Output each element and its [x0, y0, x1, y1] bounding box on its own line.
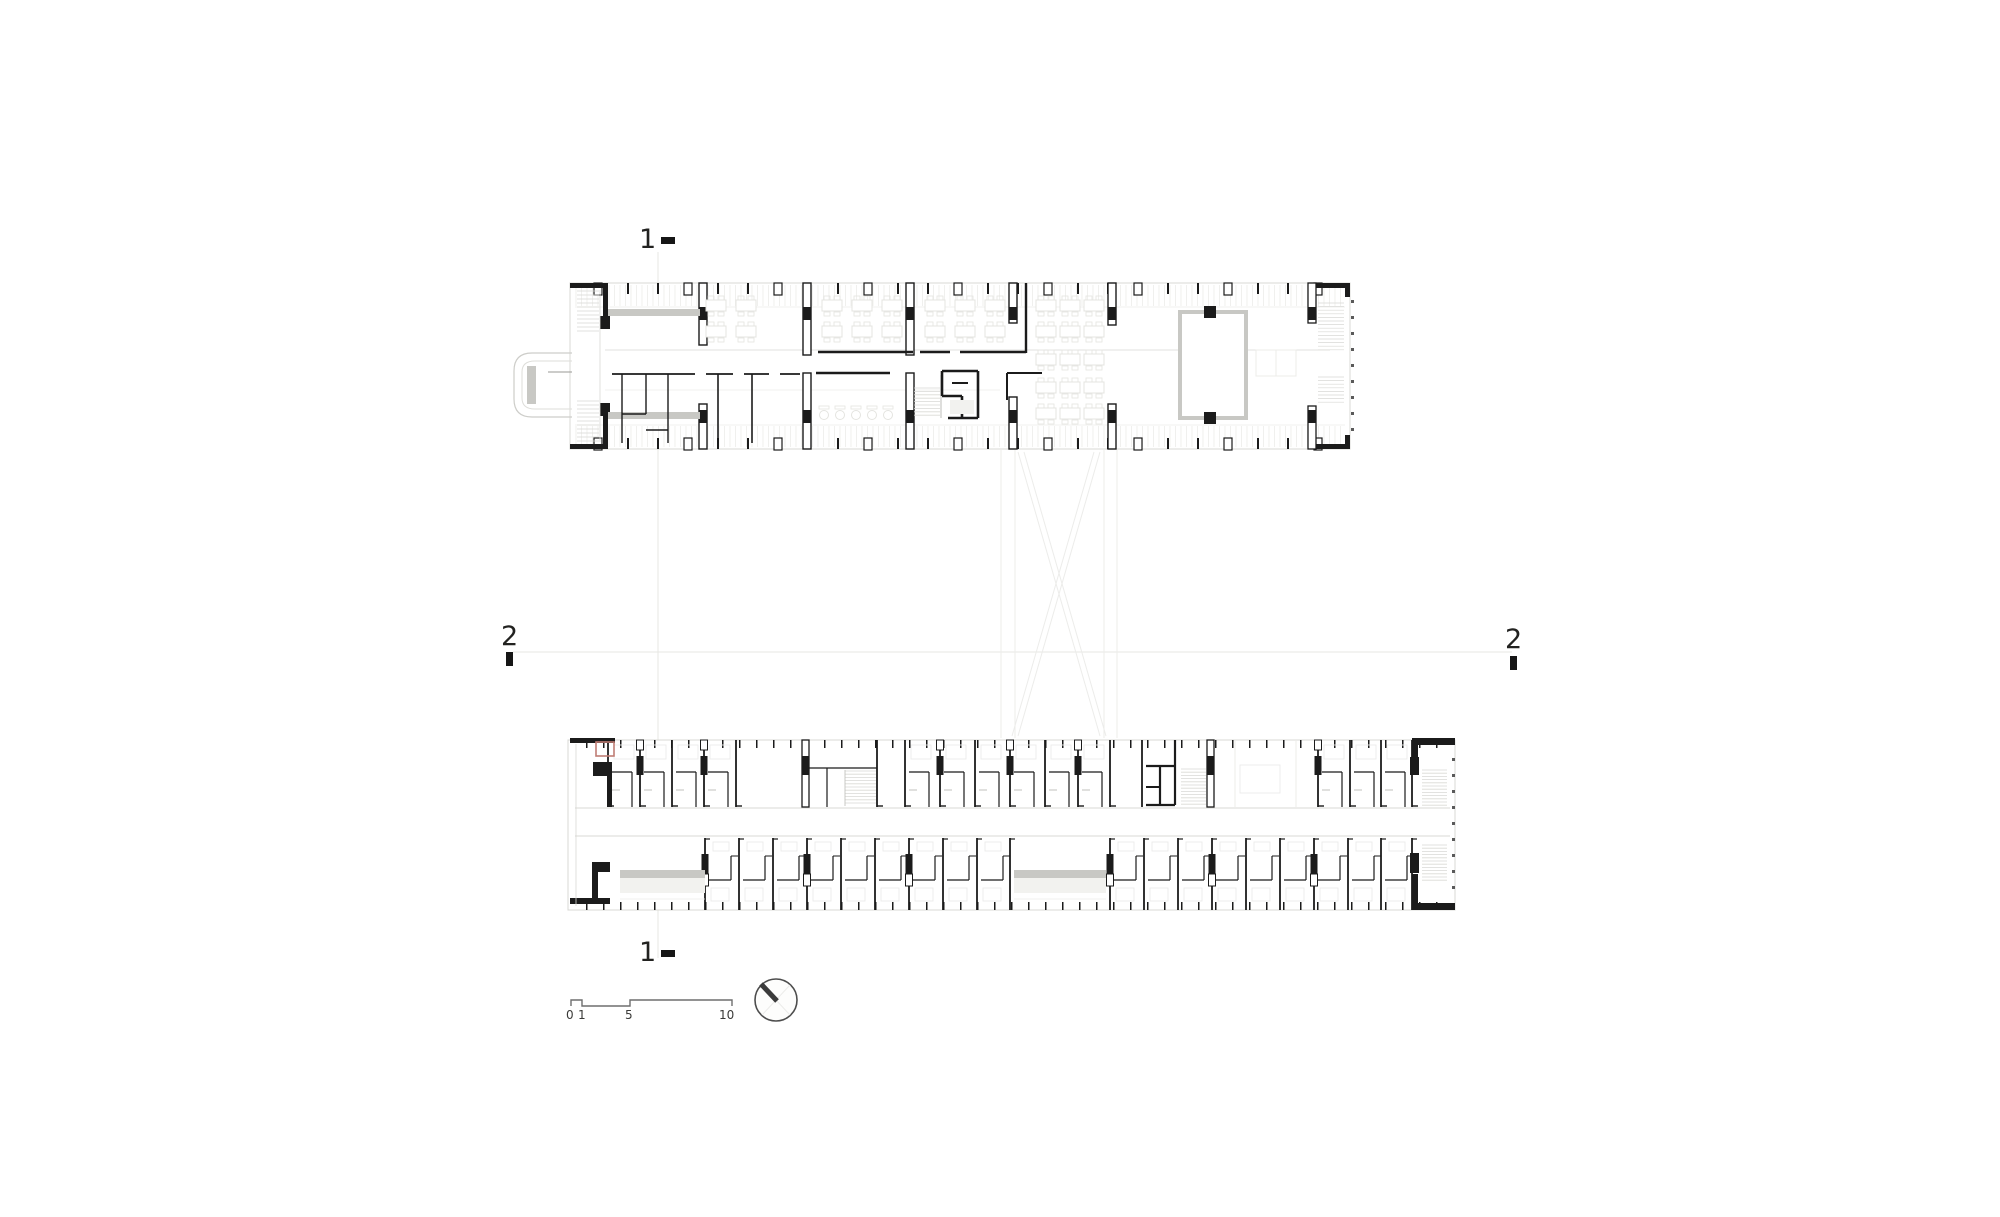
scale-label-1: 1 — [578, 1009, 586, 1021]
scale-label-5: 5 — [625, 1009, 633, 1021]
scale-label-10: 10 — [719, 1009, 734, 1021]
plan-drawing — [0, 0, 2000, 1217]
section-marker-2-right-label: 2 — [1505, 626, 1522, 653]
section-marker-2-left-label: 2 — [501, 623, 518, 650]
connector-ramp — [1001, 450, 1117, 738]
upper-floor-plan — [514, 283, 1354, 450]
floorplan-canvas: 1 1 2 2 0 1 5 10 — [0, 0, 2000, 1217]
lower-floor-plan — [568, 738, 1455, 910]
section-marker-1-bottom-label: 1 — [639, 939, 656, 966]
section-marker-1-top-label: 1 — [639, 226, 656, 253]
north-arrow-icon — [755, 979, 797, 1021]
scale-label-0: 0 — [566, 1009, 574, 1021]
scale-bar — [571, 1000, 732, 1006]
